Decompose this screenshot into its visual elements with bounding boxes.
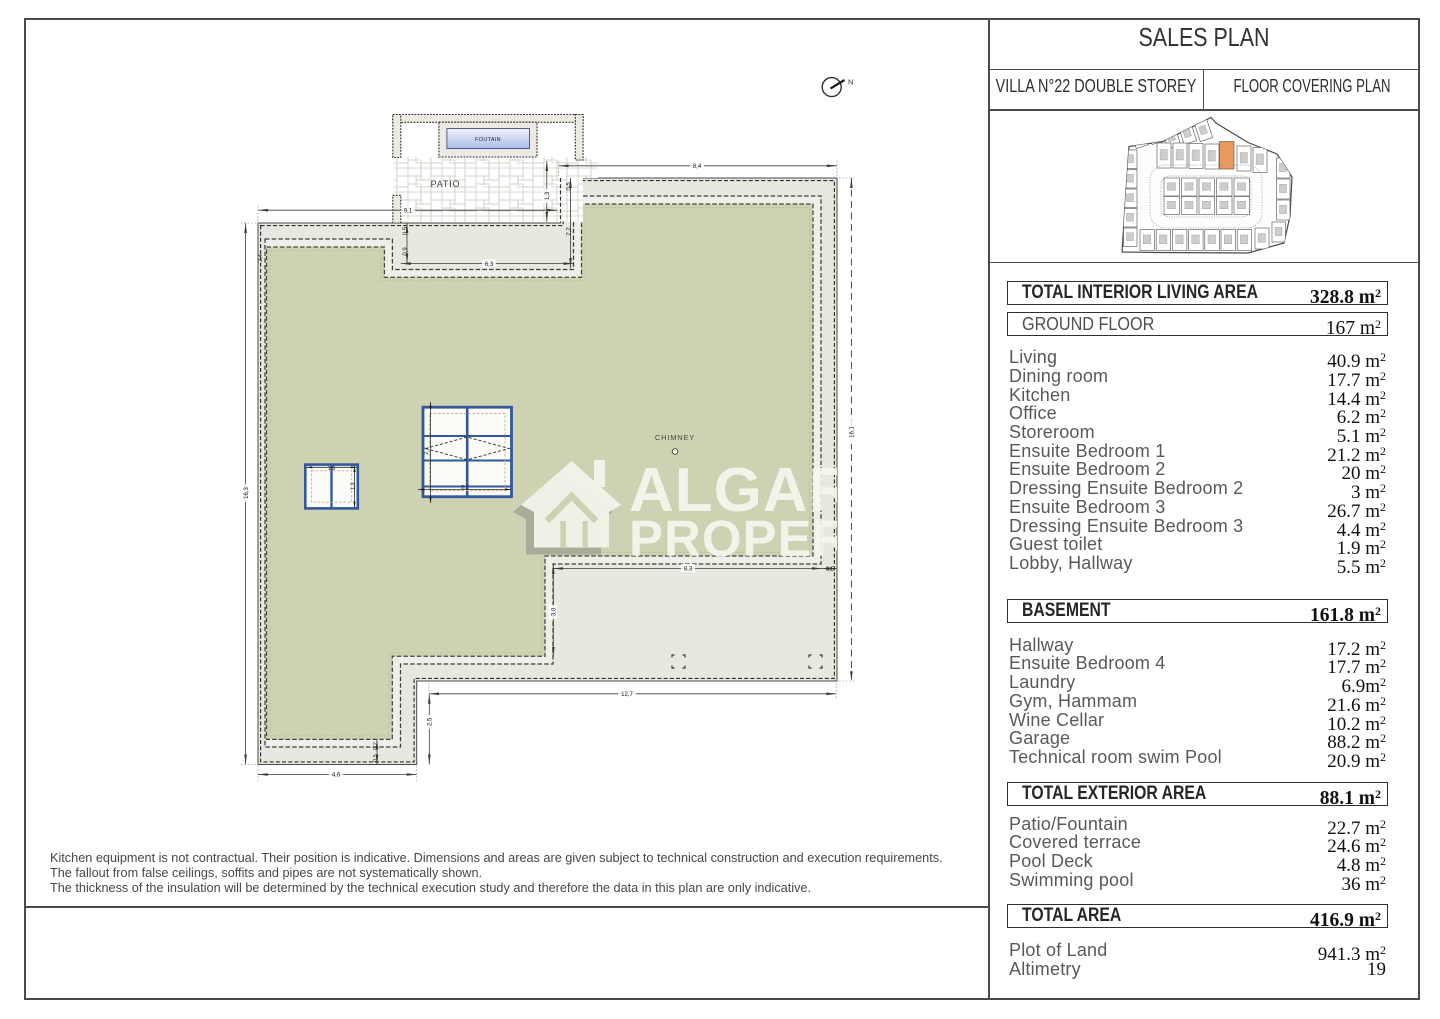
svg-text:2,4: 2,4: [258, 254, 264, 262]
svg-text:4,6: 4,6: [332, 773, 341, 779]
svg-text:FOUTAIN: FOUTAIN: [475, 137, 501, 143]
svg-text:PROPERTY: PROPERTY: [629, 510, 918, 567]
svg-text:1,5: 1,5: [328, 466, 336, 472]
svg-text:0,5: 0,5: [826, 567, 835, 573]
svg-text:1,3: 1,3: [545, 191, 551, 200]
svg-text:8,4: 8,4: [693, 164, 702, 170]
svg-text:6,3: 6,3: [485, 262, 494, 268]
svg-text:0,5: 0,5: [567, 182, 573, 191]
svg-text:1,3: 1,3: [351, 483, 357, 491]
svg-text:2,5: 2,5: [428, 717, 434, 726]
svg-text:2,7: 2,7: [461, 485, 469, 491]
svg-text:CHIMNEY: CHIMNEY: [655, 433, 695, 442]
svg-text:2,2: 2,2: [567, 227, 573, 236]
svg-text:PATIO: PATIO: [431, 179, 461, 189]
svg-text:9,1: 9,1: [404, 208, 413, 214]
svg-text:3,0: 3,0: [552, 607, 558, 616]
svg-text:2,7: 2,7: [424, 447, 430, 455]
svg-text:0,5: 0,5: [373, 754, 379, 762]
svg-text:0,9: 0,9: [403, 247, 409, 256]
svg-text:8,3: 8,3: [684, 567, 693, 573]
svg-text:0,2: 0,2: [373, 742, 379, 750]
svg-text:16,1: 16,1: [850, 426, 856, 438]
svg-text:0,5: 0,5: [403, 226, 409, 235]
svg-text:16,3: 16,3: [244, 487, 250, 499]
svg-text:N: N: [848, 78, 853, 87]
svg-text:12,7: 12,7: [621, 692, 633, 698]
